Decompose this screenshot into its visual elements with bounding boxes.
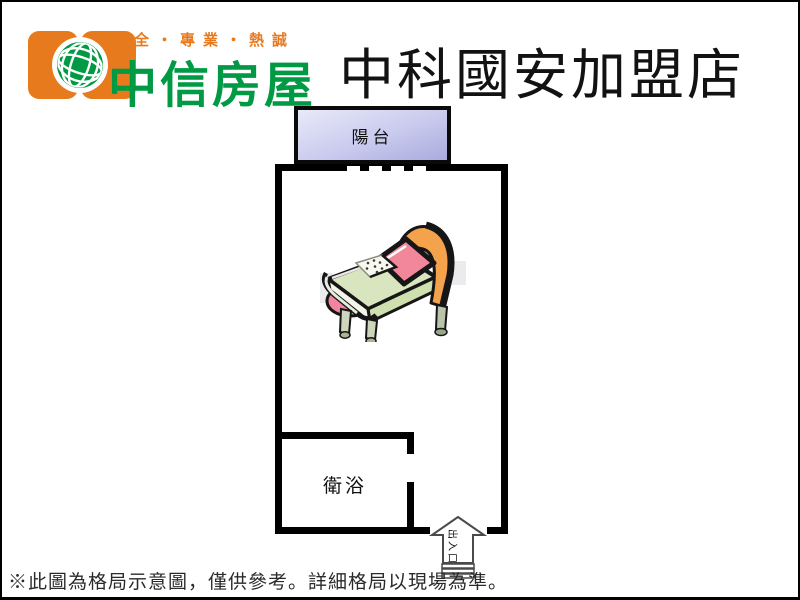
room-wall-bottom-left [275,527,430,534]
bathroom-wall-horizontal [282,432,414,439]
sliding-door-dash [391,166,404,171]
entrance-label: 出入口 [446,529,461,565]
room-wall-left [275,164,282,534]
brand-name: 中信房屋 [108,46,316,117]
disclaimer-text: ※此圖為格局示意圖，僅供參考。詳細格局以現場為準。 [8,567,508,594]
bed-icon [320,217,480,342]
balcony-label: 陽台 [352,123,394,148]
room-wall-right [501,164,508,534]
balcony-area: 陽台 [294,106,451,164]
sliding-door-dash [413,166,426,171]
bathroom-wall-vertical [407,482,414,527]
bathroom-wall-stub [407,439,414,454]
flyer-page: 安全・專業・熱誠 中信房屋 中科國安加盟店 陽台 衛浴 [0,0,800,600]
sliding-door-dash [369,166,382,171]
sliding-door-dash [347,166,360,171]
store-title: 中科國安加盟店 [339,30,745,110]
bathroom-label: 衛浴 [323,471,367,498]
